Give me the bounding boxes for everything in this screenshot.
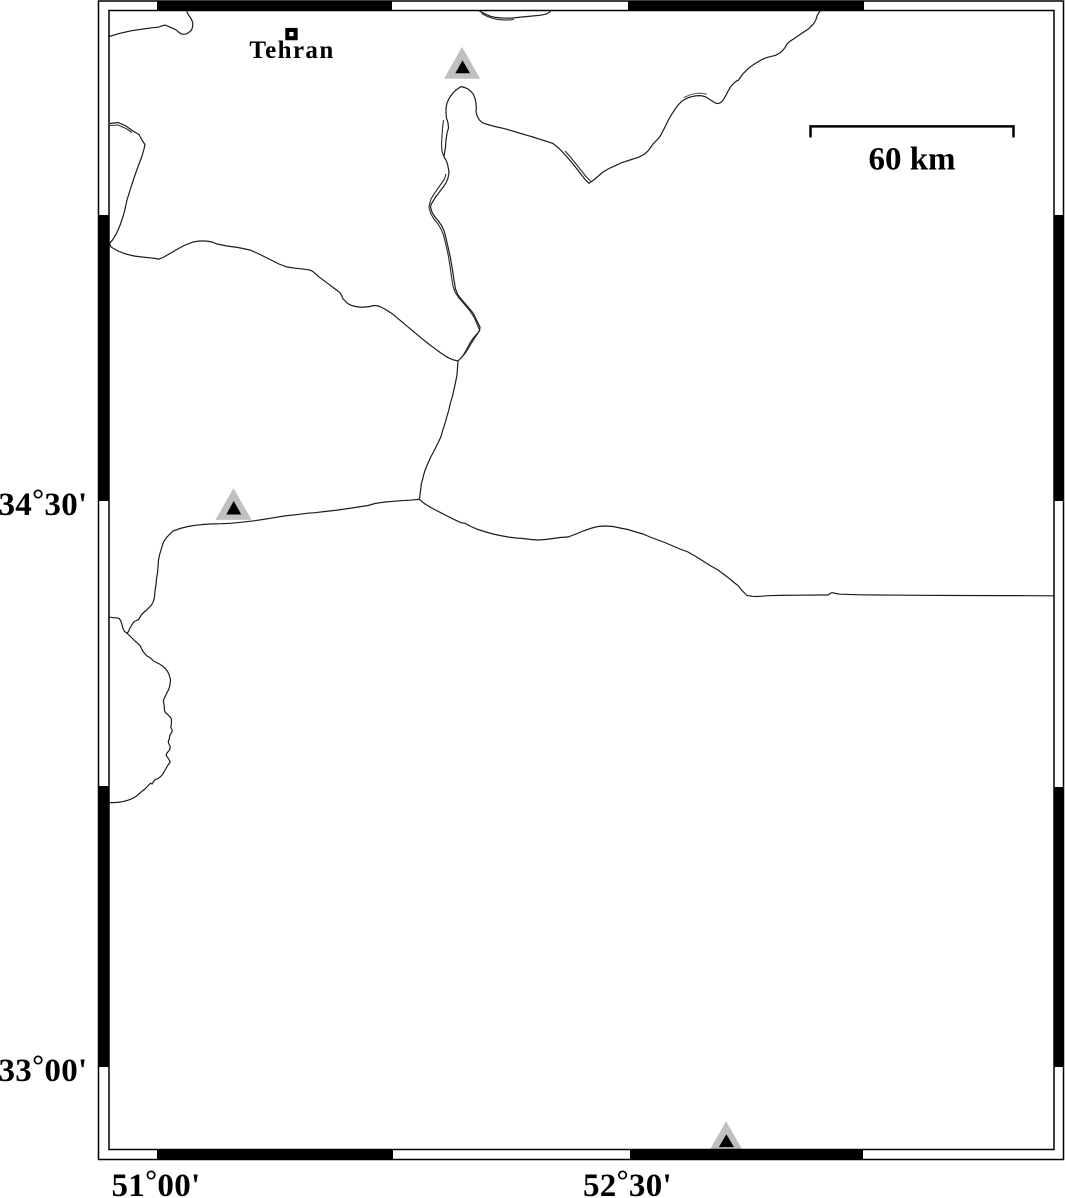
svg-text:34°30': 34°30' <box>0 484 88 524</box>
svg-text:33°00': 33°00' <box>0 1050 88 1090</box>
svg-text:52°30': 52°30' <box>583 1165 672 1198</box>
svg-text:51°00': 51°00' <box>112 1165 201 1198</box>
svg-text:60 km: 60 km <box>868 142 955 178</box>
svg-text:Tehran: Tehran <box>249 37 334 64</box>
